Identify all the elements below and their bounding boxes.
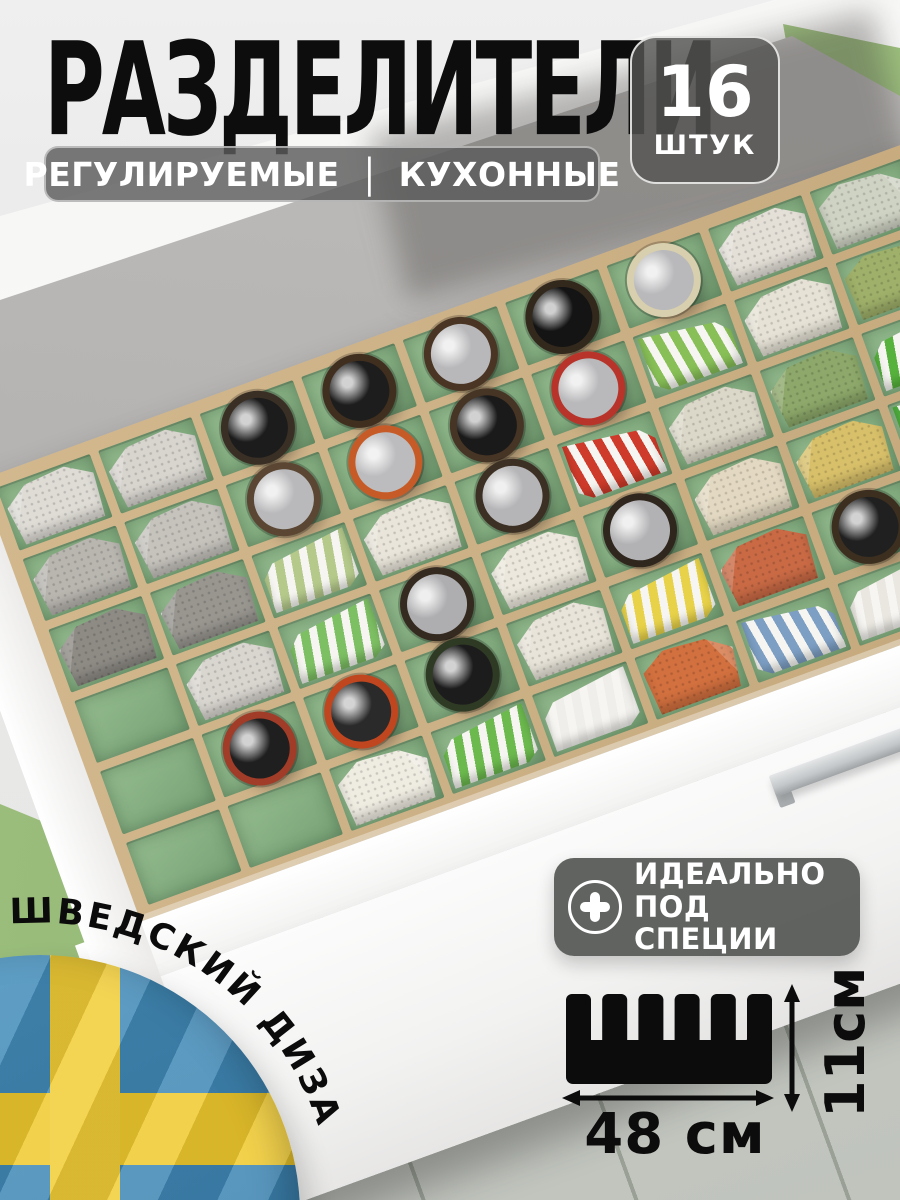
- spice-jar: [323, 673, 400, 750]
- svg-text:ШВЕДСКИЙ ДИЗАЙН: ШВЕДСКИЙ ДИЗАЙН: [0, 856, 349, 1132]
- count-badge: 16 ШТУК: [630, 36, 780, 184]
- spice-jar: [398, 566, 475, 643]
- product-ad-image: РАЗДЕЛИТЕЛИ РЕГУЛИРУЕМЫЕ | КУХОННЫЕ 16 Ш…: [0, 0, 900, 1200]
- spice-bag: [813, 162, 900, 251]
- spice-jar: [602, 492, 679, 569]
- page-title: РАЗДЕЛИТЕЛИ: [44, 26, 715, 155]
- spice-jar: [831, 489, 900, 566]
- spice-packets: [436, 703, 542, 789]
- spice-packets: [537, 666, 643, 752]
- spice-jar: [424, 636, 501, 713]
- divider-comb-icon: [566, 994, 772, 1084]
- spice-packets: [740, 592, 846, 678]
- spice-jar: [245, 461, 322, 538]
- spice-jar: [219, 390, 296, 467]
- subtitle-right: КУХОННЫЕ: [399, 155, 621, 194]
- spice-jar: [448, 387, 525, 464]
- spice-jar: [221, 710, 298, 787]
- spice-packets: [561, 416, 667, 502]
- spice-jar: [321, 353, 398, 430]
- spice-jar: [626, 242, 703, 319]
- spice-bag: [638, 628, 746, 717]
- spice-packets: [637, 308, 743, 394]
- spice-packets: [257, 527, 363, 613]
- spice-jar: [474, 458, 551, 535]
- height-dimension-label: 11см: [814, 967, 877, 1118]
- drawer-cell: [809, 158, 900, 254]
- spice-jar: [524, 279, 601, 356]
- spice-jar: [347, 424, 424, 501]
- subtitle-badge: РЕГУЛИРУЕМЫЕ | КУХОННЫЕ: [44, 146, 600, 202]
- spice-packets: [613, 558, 719, 644]
- flag-caption-arc: ШВЕДСКИЙ ДИЗАЙН: [0, 856, 450, 1200]
- spice-bag: [333, 739, 441, 828]
- subtitle-left: РЕГУЛИРУЕМЫЕ: [24, 155, 340, 194]
- flag-caption: ШВЕДСКИЙ ДИЗАЙН: [0, 856, 349, 1132]
- count-unit: ШТУК: [654, 130, 757, 161]
- count-value: 16: [656, 59, 753, 126]
- width-dimension-label: 48 см: [556, 1102, 794, 1167]
- feature-line1: ИДЕАЛЬНО: [634, 858, 846, 890]
- plus-icon: [568, 880, 622, 934]
- feature-badge: ИДЕАЛЬНО ПОД СПЕЦИИ: [554, 858, 860, 956]
- subtitle-separator: |: [365, 151, 374, 197]
- spice-jar: [550, 350, 627, 427]
- height-arrow-icon: [782, 984, 802, 1112]
- feature-text: ИДЕАЛЬНО ПОД СПЕЦИИ: [634, 858, 846, 955]
- spice-jar: [423, 316, 500, 393]
- feature-line2: ПОД СПЕЦИИ: [634, 891, 846, 956]
- spice-packets: [282, 598, 388, 684]
